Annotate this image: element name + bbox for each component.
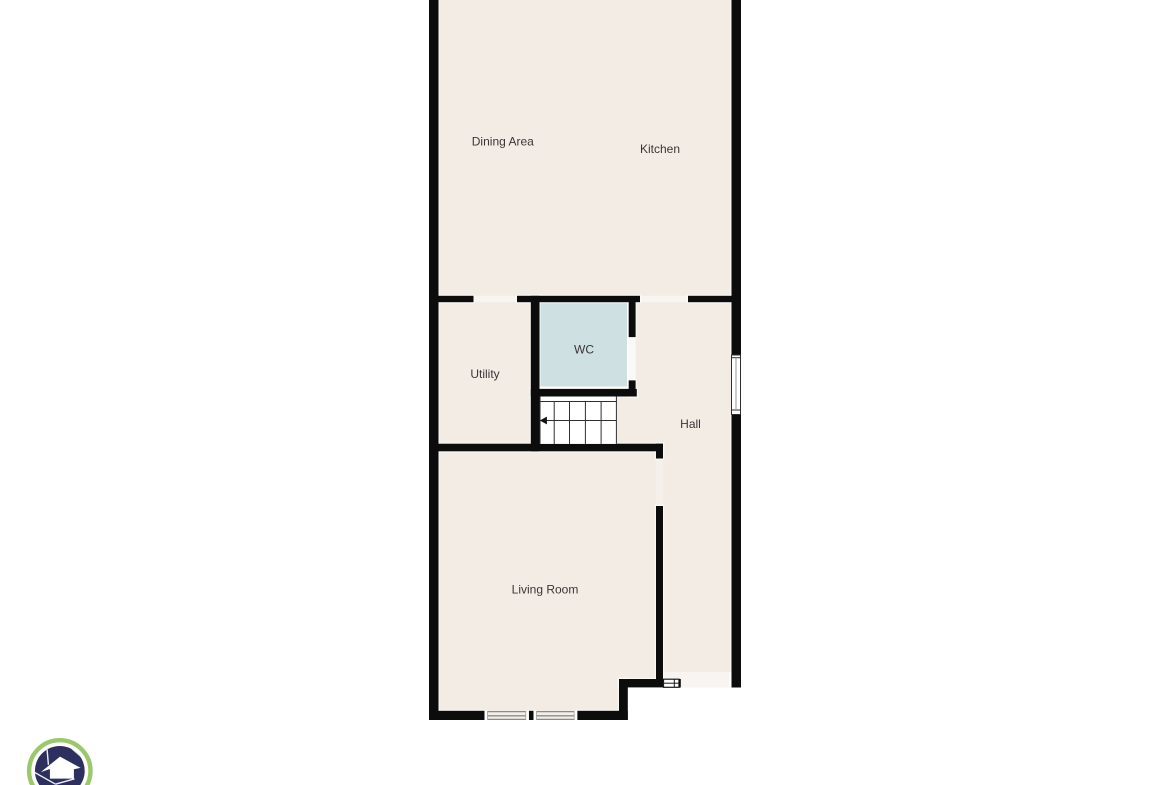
svg-text:Hall: Hall (680, 417, 701, 431)
svg-text:Dining Area: Dining Area (472, 135, 534, 149)
svg-text:Utility: Utility (470, 367, 499, 381)
svg-text:WC: WC (574, 343, 594, 357)
svg-text:Living Room: Living Room (512, 583, 579, 597)
svg-text:Kitchen: Kitchen (640, 142, 680, 156)
